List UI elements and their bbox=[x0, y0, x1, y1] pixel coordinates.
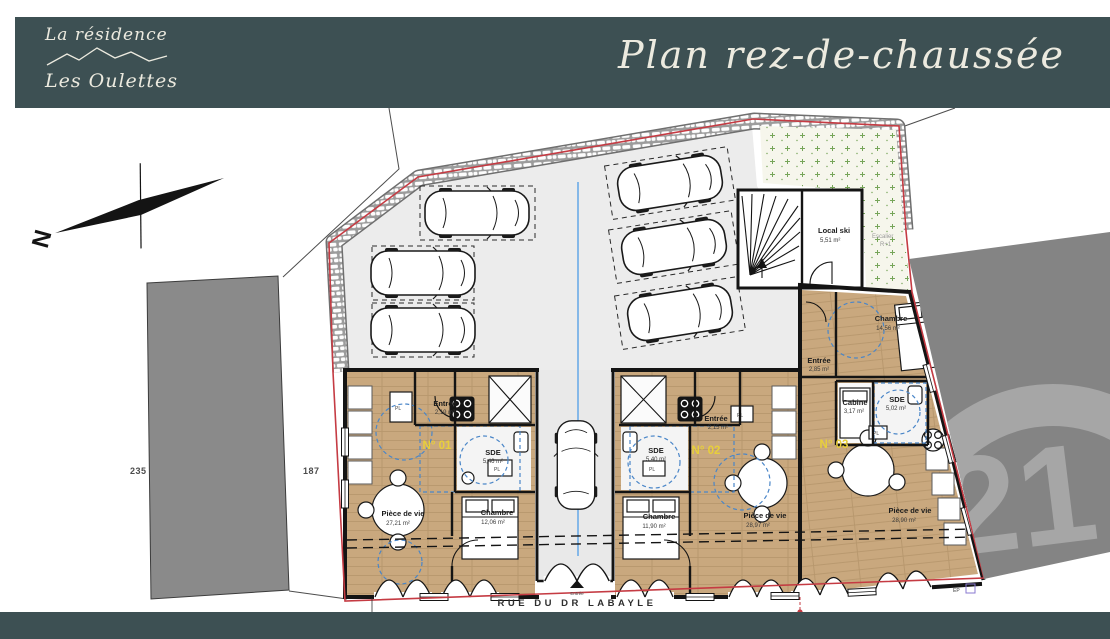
north-label: N bbox=[27, 227, 58, 251]
local-ski-label: Local ski bbox=[818, 226, 850, 235]
header-bar: La résidence Les Oulettes Plan rez-de-ch… bbox=[15, 17, 1110, 108]
entrance-label: Entrée bbox=[570, 591, 584, 596]
parcel-235-label: 235 bbox=[130, 466, 147, 476]
svg-text:28,90 m²: 28,90 m² bbox=[892, 518, 916, 524]
svg-text:5,40 m²: 5,40 m² bbox=[646, 457, 666, 463]
svg-text:14,56 m²: 14,56 m² bbox=[876, 326, 900, 332]
mountain-icon bbox=[45, 45, 175, 67]
parcel-235 bbox=[147, 276, 289, 599]
svg-text:PL: PL bbox=[494, 467, 500, 473]
stairs-note-2: R+1 bbox=[880, 242, 892, 248]
svg-text:5,46 m²: 5,46 m² bbox=[483, 459, 503, 465]
svg-text:11,90 m²: 11,90 m² bbox=[642, 524, 665, 530]
svg-text:3,17 m²: 3,17 m² bbox=[844, 409, 864, 415]
svg-text:Pièce de vie: Pièce de vie bbox=[744, 511, 787, 520]
svg-text:Chambre: Chambre bbox=[875, 314, 908, 323]
page: 235 187 Escalier R+1 bbox=[0, 0, 1110, 639]
logo-line-2: Les Oulettes bbox=[45, 70, 178, 92]
local-ski-area: 5,51 m² bbox=[820, 238, 840, 244]
apt1-number: N° 01 bbox=[423, 440, 452, 452]
ep-marker-3: EP bbox=[953, 588, 960, 594]
residence-logo: La résidence Les Oulettes bbox=[45, 25, 178, 92]
svg-text:Cabine: Cabine bbox=[842, 398, 867, 407]
stairs-note: Escalier bbox=[872, 234, 893, 240]
logo-line-1: La résidence bbox=[45, 25, 178, 45]
bed-apt1 bbox=[462, 497, 518, 559]
svg-text:2,85 m²: 2,85 m² bbox=[809, 367, 829, 373]
apt2-number: N° 02 bbox=[692, 445, 721, 457]
cooktop-icon bbox=[922, 429, 944, 451]
svg-text:Entrée: Entrée bbox=[807, 356, 830, 365]
page-title: Plan rez-de-chaussée bbox=[618, 33, 1065, 77]
svg-text:Entrée: Entrée bbox=[704, 414, 727, 423]
svg-text:Pièce de vie: Pièce de vie bbox=[382, 509, 425, 518]
svg-text:Chambre: Chambre bbox=[643, 512, 676, 521]
svg-text:2,19 m²: 2,19 m² bbox=[435, 410, 455, 416]
north-arrow: N bbox=[17, 149, 234, 267]
svg-text:Pièce de vie: Pièce de vie bbox=[889, 506, 932, 515]
svg-text:Chambre: Chambre bbox=[481, 508, 514, 517]
footer-bar bbox=[0, 612, 1110, 639]
street-label: RUE DU DR LABAYLE bbox=[498, 598, 657, 609]
parcel-187-label: 187 bbox=[303, 466, 320, 476]
svg-text:5,02 m²: 5,02 m² bbox=[886, 406, 906, 412]
svg-text:SDE: SDE bbox=[485, 448, 500, 457]
svg-text:2,15 m²: 2,15 m² bbox=[708, 425, 728, 431]
svg-text:28,97 m²: 28,97 m² bbox=[746, 523, 770, 529]
svg-text:Entrée: Entrée bbox=[433, 399, 456, 408]
stairs-block: Local ski 5,51 m² bbox=[738, 190, 862, 288]
lobby-car bbox=[554, 421, 598, 509]
svg-text:12,06 m²: 12,06 m² bbox=[481, 520, 505, 526]
svg-text:SDE: SDE bbox=[648, 446, 663, 455]
svg-text:SDE: SDE bbox=[889, 395, 904, 404]
svg-text:PL: PL bbox=[649, 467, 655, 473]
apt3-number: N° 03 bbox=[820, 439, 849, 451]
svg-text:27,21 m²: 27,21 m² bbox=[386, 521, 410, 527]
svg-text:PL: PL bbox=[395, 406, 401, 412]
